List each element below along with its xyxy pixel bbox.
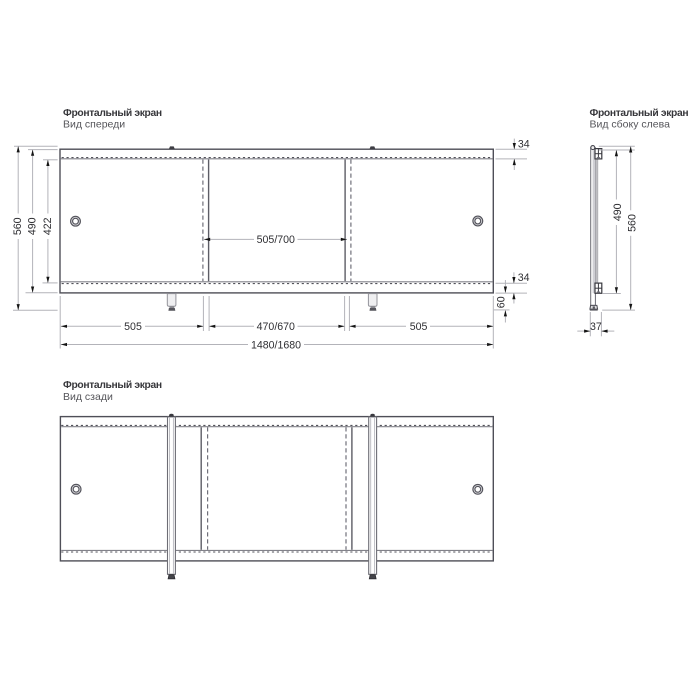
svg-text:505: 505 (410, 321, 428, 333)
svg-text:37: 37 (590, 321, 602, 333)
svg-text:560: 560 (627, 214, 639, 232)
svg-text:490: 490 (27, 217, 39, 235)
svg-text:34: 34 (518, 138, 530, 150)
svg-text:422: 422 (42, 217, 54, 235)
svg-text:Вид спереди: Вид спереди (63, 119, 125, 131)
svg-text:Фронтальный экран: Фронтальный экран (63, 380, 162, 391)
svg-text:1480/1680: 1480/1680 (251, 339, 301, 351)
svg-text:505/700: 505/700 (257, 234, 295, 246)
svg-text:60: 60 (495, 296, 507, 308)
svg-text:Фронтальный экран: Фронтальный экран (590, 108, 689, 119)
svg-text:Фронтальный экран: Фронтальный экран (63, 108, 162, 119)
svg-text:34: 34 (518, 272, 530, 284)
svg-text:Вид сбоку слева: Вид сбоку слева (590, 119, 671, 131)
svg-text:Вид сзади: Вид сзади (63, 391, 113, 403)
svg-text:470/670: 470/670 (257, 321, 295, 333)
svg-text:490: 490 (612, 203, 624, 221)
svg-text:505: 505 (124, 321, 142, 333)
svg-text:560: 560 (12, 217, 24, 235)
